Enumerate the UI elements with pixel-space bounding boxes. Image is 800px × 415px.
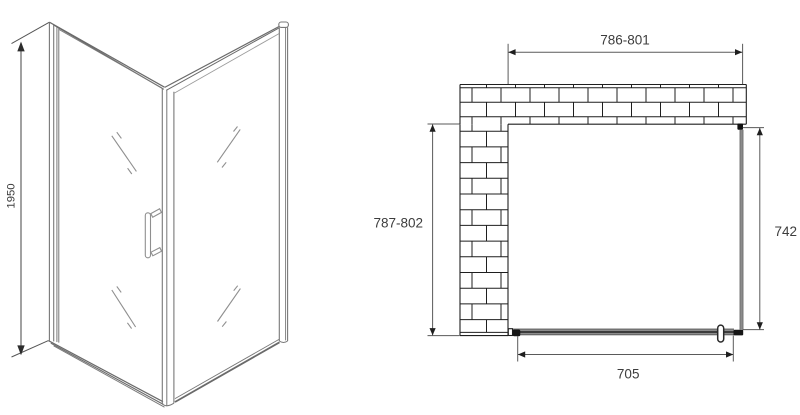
svg-text:742: 742 — [775, 224, 798, 239]
svg-text:705: 705 — [617, 367, 640, 382]
svg-text:787-802: 787-802 — [373, 215, 423, 230]
svg-text:1950: 1950 — [5, 183, 17, 208]
svg-text:786-801: 786-801 — [600, 32, 650, 47]
